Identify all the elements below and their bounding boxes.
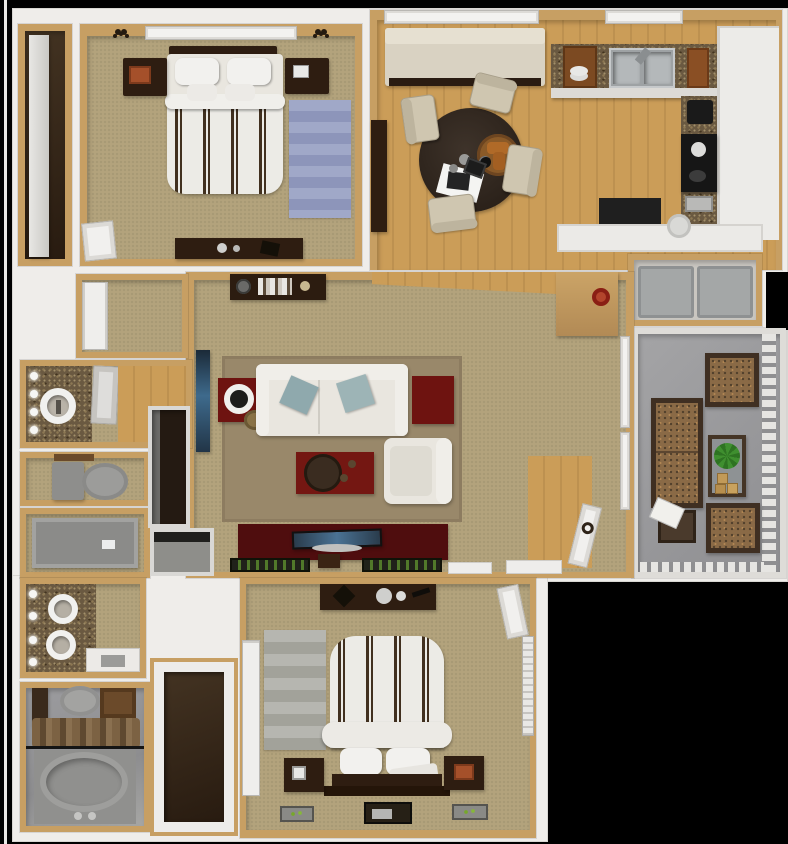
wood-transition xyxy=(372,272,556,294)
storage-box xyxy=(318,554,340,568)
floor-plan xyxy=(0,0,788,844)
pot-dark xyxy=(689,170,706,182)
blue-striped-rug xyxy=(289,100,351,218)
round-tray xyxy=(304,454,342,492)
dresser xyxy=(175,238,303,259)
dining-loveseat xyxy=(385,28,545,86)
toaster xyxy=(685,196,713,212)
coffee-maker xyxy=(687,100,713,124)
laundry-block-wall xyxy=(556,272,618,336)
master-bathroom xyxy=(20,682,150,832)
dish-rack xyxy=(563,46,597,88)
bed-platform xyxy=(324,786,450,796)
vanity-light xyxy=(30,408,38,416)
console-table xyxy=(371,120,387,232)
potted-plant-icon xyxy=(714,443,740,469)
vanity-light xyxy=(30,426,38,434)
sofa-cushion-divider xyxy=(656,451,698,453)
wardrobe-doors xyxy=(242,640,260,796)
vanity-light xyxy=(30,390,38,398)
books xyxy=(258,278,292,295)
pillow xyxy=(340,748,382,775)
window-blinds xyxy=(522,636,534,736)
end-table-right xyxy=(412,376,454,424)
tray xyxy=(129,66,151,84)
pillow-small xyxy=(187,84,217,101)
kettle xyxy=(691,142,706,157)
railing-bottom xyxy=(640,562,764,572)
dining-window xyxy=(384,10,539,24)
shower-tub xyxy=(32,518,138,568)
living-window-upper xyxy=(620,336,630,428)
closet-shelf xyxy=(29,35,49,257)
tray xyxy=(454,764,474,780)
upper-cabinets xyxy=(717,26,779,240)
table-lamp-icon xyxy=(224,384,254,414)
wall-sconce-right-icon xyxy=(319,32,323,36)
threshold xyxy=(448,562,492,574)
book xyxy=(293,65,309,78)
threshold xyxy=(506,560,562,574)
background-notch xyxy=(766,272,788,330)
perfume xyxy=(396,591,406,601)
tray-dot xyxy=(348,460,356,468)
towels xyxy=(32,718,140,748)
plant-mat-left xyxy=(280,806,314,822)
tv-base xyxy=(312,544,362,552)
decor-circle xyxy=(217,243,227,253)
side-table xyxy=(658,510,696,543)
armchair xyxy=(384,438,452,504)
sofa-arm-right xyxy=(395,364,408,436)
plant-dots xyxy=(290,810,304,818)
bedroom2-door xyxy=(496,584,528,639)
duvet xyxy=(167,106,283,194)
nightstand-left xyxy=(123,58,167,96)
hallway xyxy=(76,274,188,358)
footboard-band xyxy=(322,722,452,748)
vanity-light xyxy=(29,612,37,620)
crate xyxy=(715,484,726,494)
pillow xyxy=(227,58,271,85)
plate-stack xyxy=(570,66,588,76)
washer xyxy=(638,266,694,318)
crate xyxy=(727,483,738,494)
toilet-tank xyxy=(52,462,84,500)
dryer xyxy=(697,266,753,318)
sofa-back xyxy=(258,364,406,380)
dining-chair xyxy=(400,94,440,144)
nightstand-left xyxy=(284,758,324,792)
vessel-sink xyxy=(46,630,76,660)
shoe-tray xyxy=(364,802,412,824)
dining-kitchen xyxy=(370,10,782,270)
shower-stall xyxy=(86,648,140,672)
end-table-lamp xyxy=(218,378,260,422)
sink-basin-right xyxy=(644,52,671,84)
cutting-board xyxy=(687,48,709,88)
decor-box xyxy=(260,240,280,256)
bookshelf xyxy=(230,274,326,300)
peninsula-cabinets xyxy=(557,224,763,252)
tub-rim xyxy=(40,752,128,812)
railing-right xyxy=(762,334,776,572)
outdoor-chair-top xyxy=(705,353,759,407)
napkin xyxy=(447,171,471,191)
tub-knob xyxy=(74,812,82,820)
bedroom-1 xyxy=(80,24,362,266)
plate xyxy=(449,164,458,173)
globe-icon xyxy=(236,279,251,294)
sofa xyxy=(256,364,408,436)
range xyxy=(681,134,717,192)
bedroom1-window xyxy=(145,26,297,40)
linen-closet xyxy=(148,406,190,528)
tub-knob xyxy=(88,812,96,820)
bread xyxy=(493,152,505,170)
garden-tub xyxy=(34,750,136,824)
living-room xyxy=(186,272,634,578)
double-sink xyxy=(609,48,675,88)
shower-basin xyxy=(101,655,125,667)
nightstand-right xyxy=(285,58,329,94)
outdoor-chair-bottom xyxy=(706,503,760,553)
wall-sconce-left-icon xyxy=(119,32,123,36)
towel-rod xyxy=(26,746,144,749)
outdoor-sofa xyxy=(651,398,703,508)
toilet-bowl xyxy=(82,463,128,500)
coat-closet xyxy=(150,528,214,576)
wardrobe-closet-1 xyxy=(18,24,72,266)
plant-mat-right xyxy=(452,804,488,820)
shelf xyxy=(54,454,94,461)
door-wreath-icon xyxy=(580,521,595,536)
toilet-bowl xyxy=(60,686,100,716)
clock-icon xyxy=(300,281,310,291)
plate-round xyxy=(667,214,691,238)
wood-vanity xyxy=(100,688,136,718)
chair-back xyxy=(401,98,417,145)
pillow xyxy=(175,58,219,85)
red-wall-decor-icon xyxy=(592,288,610,306)
shower-room xyxy=(20,508,150,578)
vanity-light xyxy=(29,636,37,644)
vanity-light xyxy=(29,590,37,598)
walk-in-closet-floor xyxy=(164,672,224,822)
armchair-seat xyxy=(390,446,432,496)
vanity-light xyxy=(29,658,37,666)
plant-dots xyxy=(463,808,477,816)
glass-table xyxy=(708,435,746,497)
water-closet xyxy=(20,452,150,506)
closet-bifold-doors xyxy=(82,282,108,350)
floor-mat-right xyxy=(362,558,442,572)
vessel-sink xyxy=(48,594,78,624)
jewelry-box xyxy=(333,585,356,608)
bedroom-2 xyxy=(240,578,536,838)
blue-pillow xyxy=(279,375,319,415)
decor-circle xyxy=(233,245,240,252)
comb xyxy=(412,587,431,597)
closet-door xyxy=(81,220,117,261)
kitchen-window xyxy=(605,10,683,24)
gray-striped-rug xyxy=(264,630,326,750)
dresser xyxy=(320,584,436,610)
mirror-tray xyxy=(376,588,392,604)
border-line-left xyxy=(4,0,7,844)
lamp xyxy=(292,766,306,780)
balcony xyxy=(632,328,786,578)
loveseat-base xyxy=(389,78,541,86)
vanity-light xyxy=(30,372,38,380)
tray-dot xyxy=(340,474,348,482)
bed xyxy=(324,636,450,796)
faucet-icon xyxy=(56,400,61,414)
floor-mat-left xyxy=(230,558,310,572)
armchair-back xyxy=(436,438,452,504)
laundry-closet xyxy=(628,254,762,326)
bathroom-2 xyxy=(20,578,146,678)
bed xyxy=(167,54,283,194)
living-window-lower xyxy=(620,432,630,510)
chair-back xyxy=(526,149,543,198)
loveseat-back xyxy=(385,28,545,44)
pillow-small xyxy=(225,84,255,101)
open-door xyxy=(91,365,120,424)
dining-chair xyxy=(501,144,542,197)
shoes xyxy=(372,809,392,819)
soap-dish xyxy=(102,540,115,549)
wall-tv xyxy=(196,350,210,452)
coffee-table xyxy=(296,452,374,494)
chair-back xyxy=(431,218,478,234)
dining-chair xyxy=(427,193,477,232)
nightstand-right xyxy=(444,756,484,790)
walk-in-closet xyxy=(150,658,238,836)
sofa-arm-left xyxy=(256,364,269,436)
